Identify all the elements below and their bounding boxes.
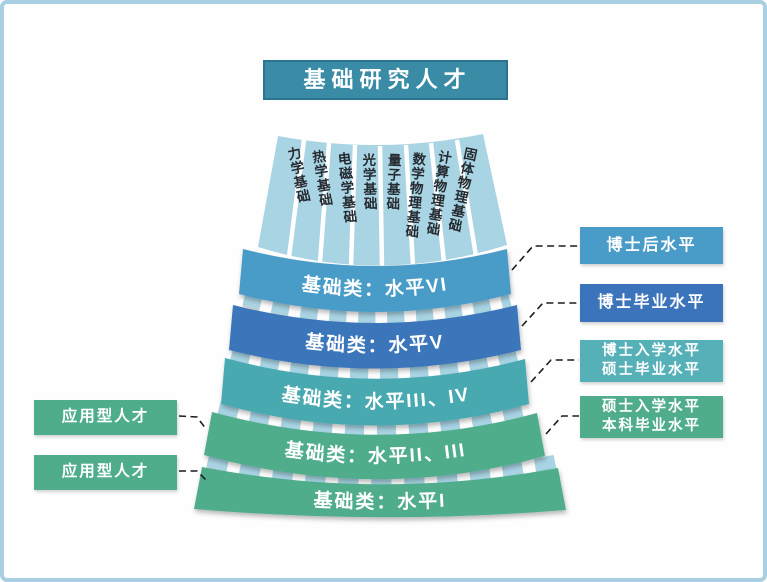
connector-right-4 bbox=[546, 416, 579, 434]
callout-postdoc-level: 博士后水平 bbox=[580, 227, 723, 264]
callout-phd-graduate-level: 博士毕业水平 bbox=[580, 284, 723, 322]
callout-applied-talent-2: 应用型人才 bbox=[34, 455, 177, 490]
callout-phd-entry-masters-graduate-level: 博士入学水平 硕士毕业水平 bbox=[580, 340, 723, 382]
callout-applied-talent-1: 应用型人才 bbox=[34, 400, 177, 435]
subject-label-optics: 光学基础 bbox=[357, 153, 379, 212]
diagram-title: 基础研究人才 bbox=[263, 60, 508, 100]
connector-left-1 bbox=[179, 416, 206, 429]
connector-right-2 bbox=[522, 303, 579, 326]
connector-right-3 bbox=[531, 360, 579, 382]
infographic: 基础类：水平VI 基础类：水平V 基础类：水平III、IV 基础类：水平II、I… bbox=[0, 0, 767, 582]
subject-label-quantum: 量子基础 bbox=[381, 153, 403, 212]
connector-right-1 bbox=[512, 246, 579, 270]
callout-masters-entry-bachelor-graduate-level: 硕士入学水平 本科毕业水平 bbox=[580, 396, 723, 438]
